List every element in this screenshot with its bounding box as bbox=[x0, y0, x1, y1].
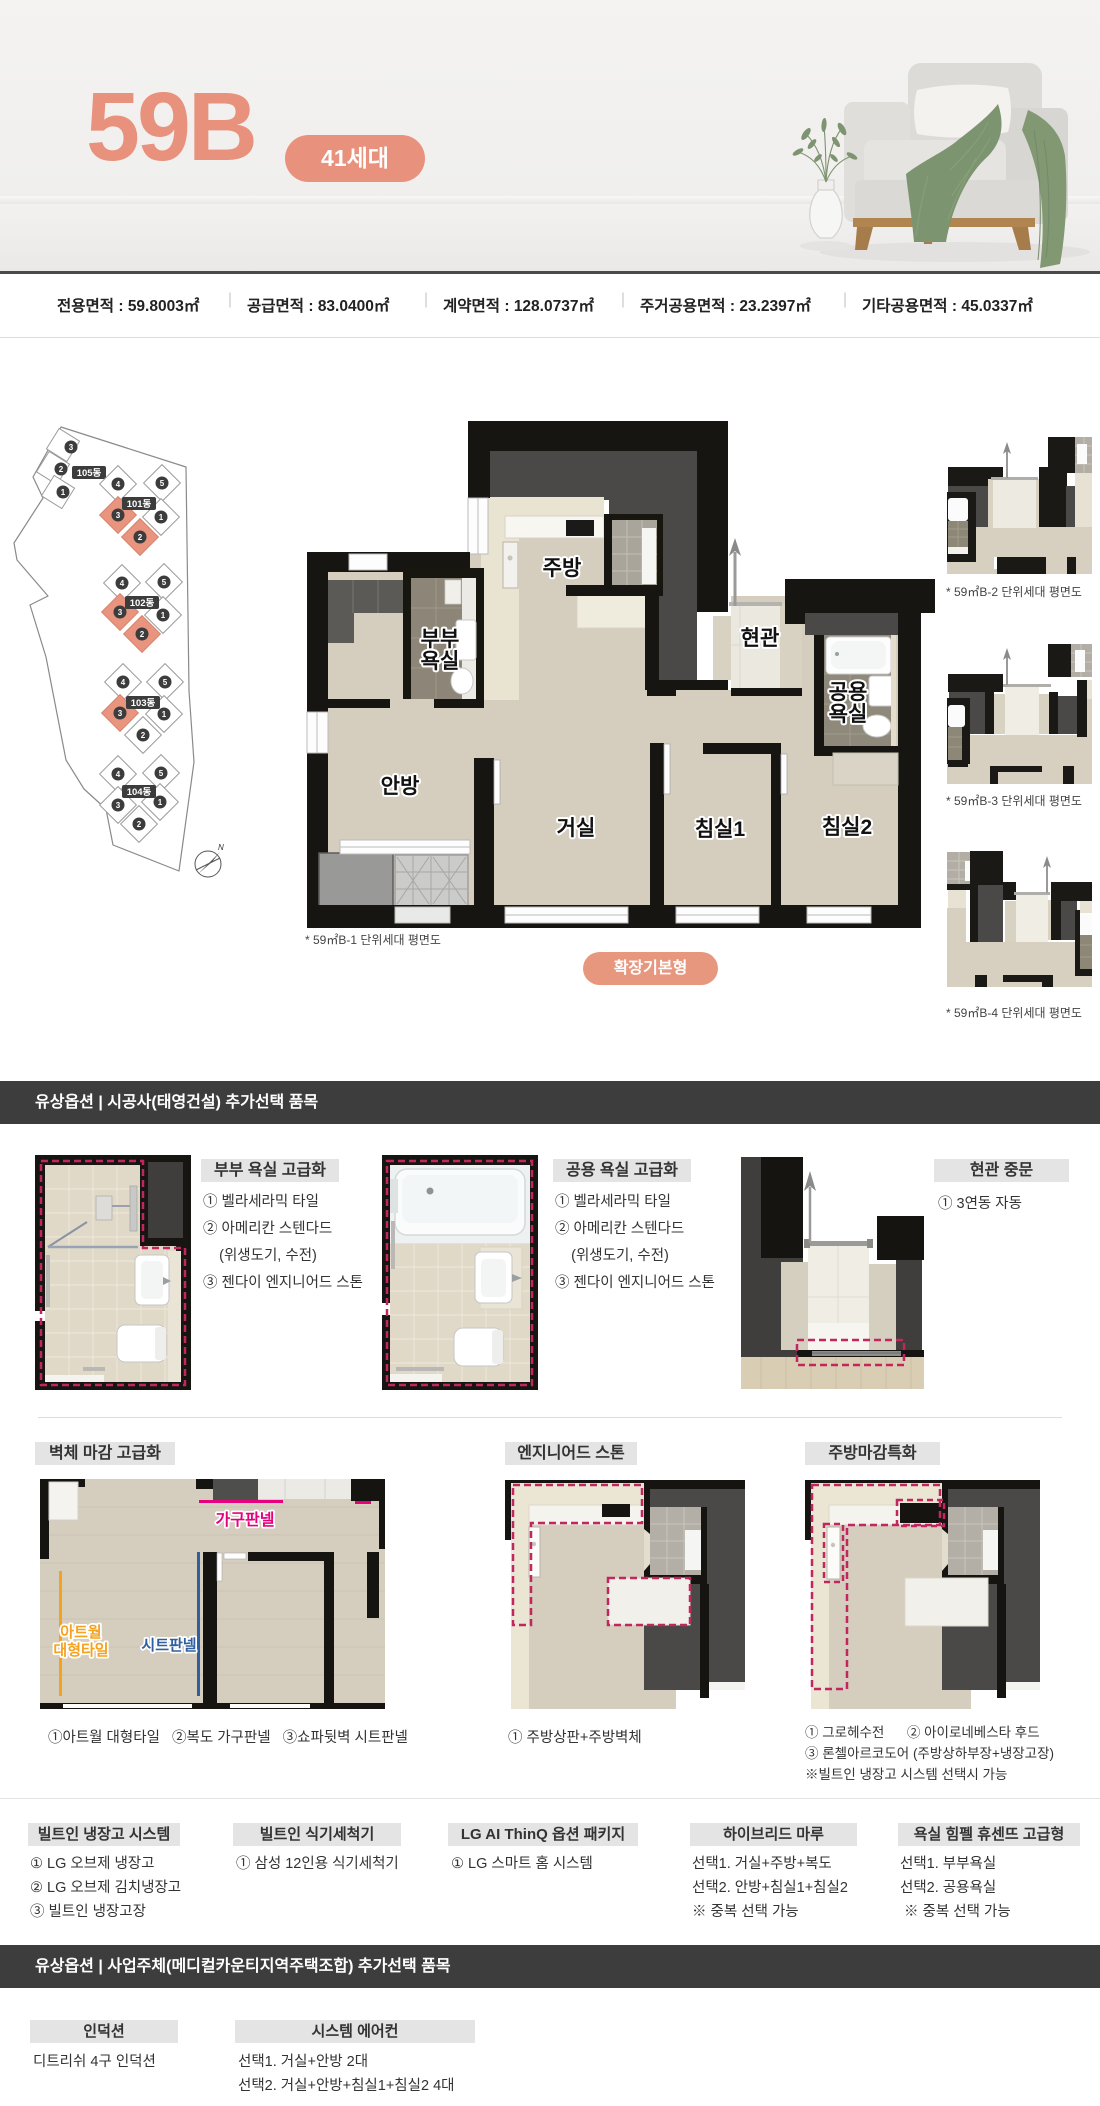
svg-text:현관: 현관 bbox=[741, 627, 780, 650]
svg-text:5: 5 bbox=[163, 678, 168, 687]
svg-text:1: 1 bbox=[61, 488, 66, 497]
svg-text:102동: 102동 bbox=[130, 598, 155, 609]
svg-text:4: 4 bbox=[116, 480, 121, 489]
svg-text:안방: 안방 bbox=[381, 775, 420, 798]
svg-text:1: 1 bbox=[158, 798, 163, 807]
svg-text:105동: 105동 bbox=[77, 468, 102, 479]
svg-text:주방: 주방 bbox=[543, 557, 582, 580]
svg-text:101동: 101동 bbox=[127, 499, 152, 510]
svg-text:대형타일: 대형타일 bbox=[53, 1642, 108, 1659]
svg-text:1: 1 bbox=[162, 710, 167, 719]
svg-text:공용: 공용 bbox=[829, 681, 868, 704]
svg-text:침실2: 침실2 bbox=[822, 816, 872, 839]
svg-text:욕실: 욕실 bbox=[421, 650, 460, 673]
svg-text:가구판넬: 가구판넬 bbox=[216, 1511, 275, 1529]
svg-text:2: 2 bbox=[137, 820, 142, 829]
svg-text:103동: 103동 bbox=[131, 698, 156, 709]
svg-text:3: 3 bbox=[118, 709, 123, 718]
svg-text:욕실: 욕실 bbox=[829, 703, 868, 726]
svg-text:부부: 부부 bbox=[421, 628, 460, 651]
svg-text:아트월: 아트월 bbox=[60, 1624, 101, 1641]
svg-text:1: 1 bbox=[161, 611, 166, 620]
svg-text:2: 2 bbox=[141, 731, 146, 740]
svg-text:2: 2 bbox=[140, 630, 145, 639]
svg-text:4: 4 bbox=[116, 770, 121, 779]
svg-text:2: 2 bbox=[59, 465, 64, 474]
svg-text:3: 3 bbox=[116, 511, 121, 520]
svg-text:3: 3 bbox=[116, 801, 121, 810]
svg-text:1: 1 bbox=[159, 513, 164, 522]
svg-text:거실: 거실 bbox=[557, 817, 596, 840]
svg-text:4: 4 bbox=[120, 579, 125, 588]
svg-text:시트판넬: 시트판넬 bbox=[141, 1637, 196, 1654]
svg-text:5: 5 bbox=[160, 479, 165, 488]
svg-text:5: 5 bbox=[162, 578, 167, 587]
svg-text:104동: 104동 bbox=[127, 787, 152, 798]
svg-text:5: 5 bbox=[159, 769, 164, 778]
svg-text:N: N bbox=[218, 843, 224, 852]
svg-text:침실1: 침실1 bbox=[695, 818, 746, 841]
svg-text:3: 3 bbox=[118, 608, 123, 617]
svg-text:3: 3 bbox=[69, 443, 74, 452]
svg-text:2: 2 bbox=[138, 533, 143, 542]
svg-text:4: 4 bbox=[121, 678, 126, 687]
